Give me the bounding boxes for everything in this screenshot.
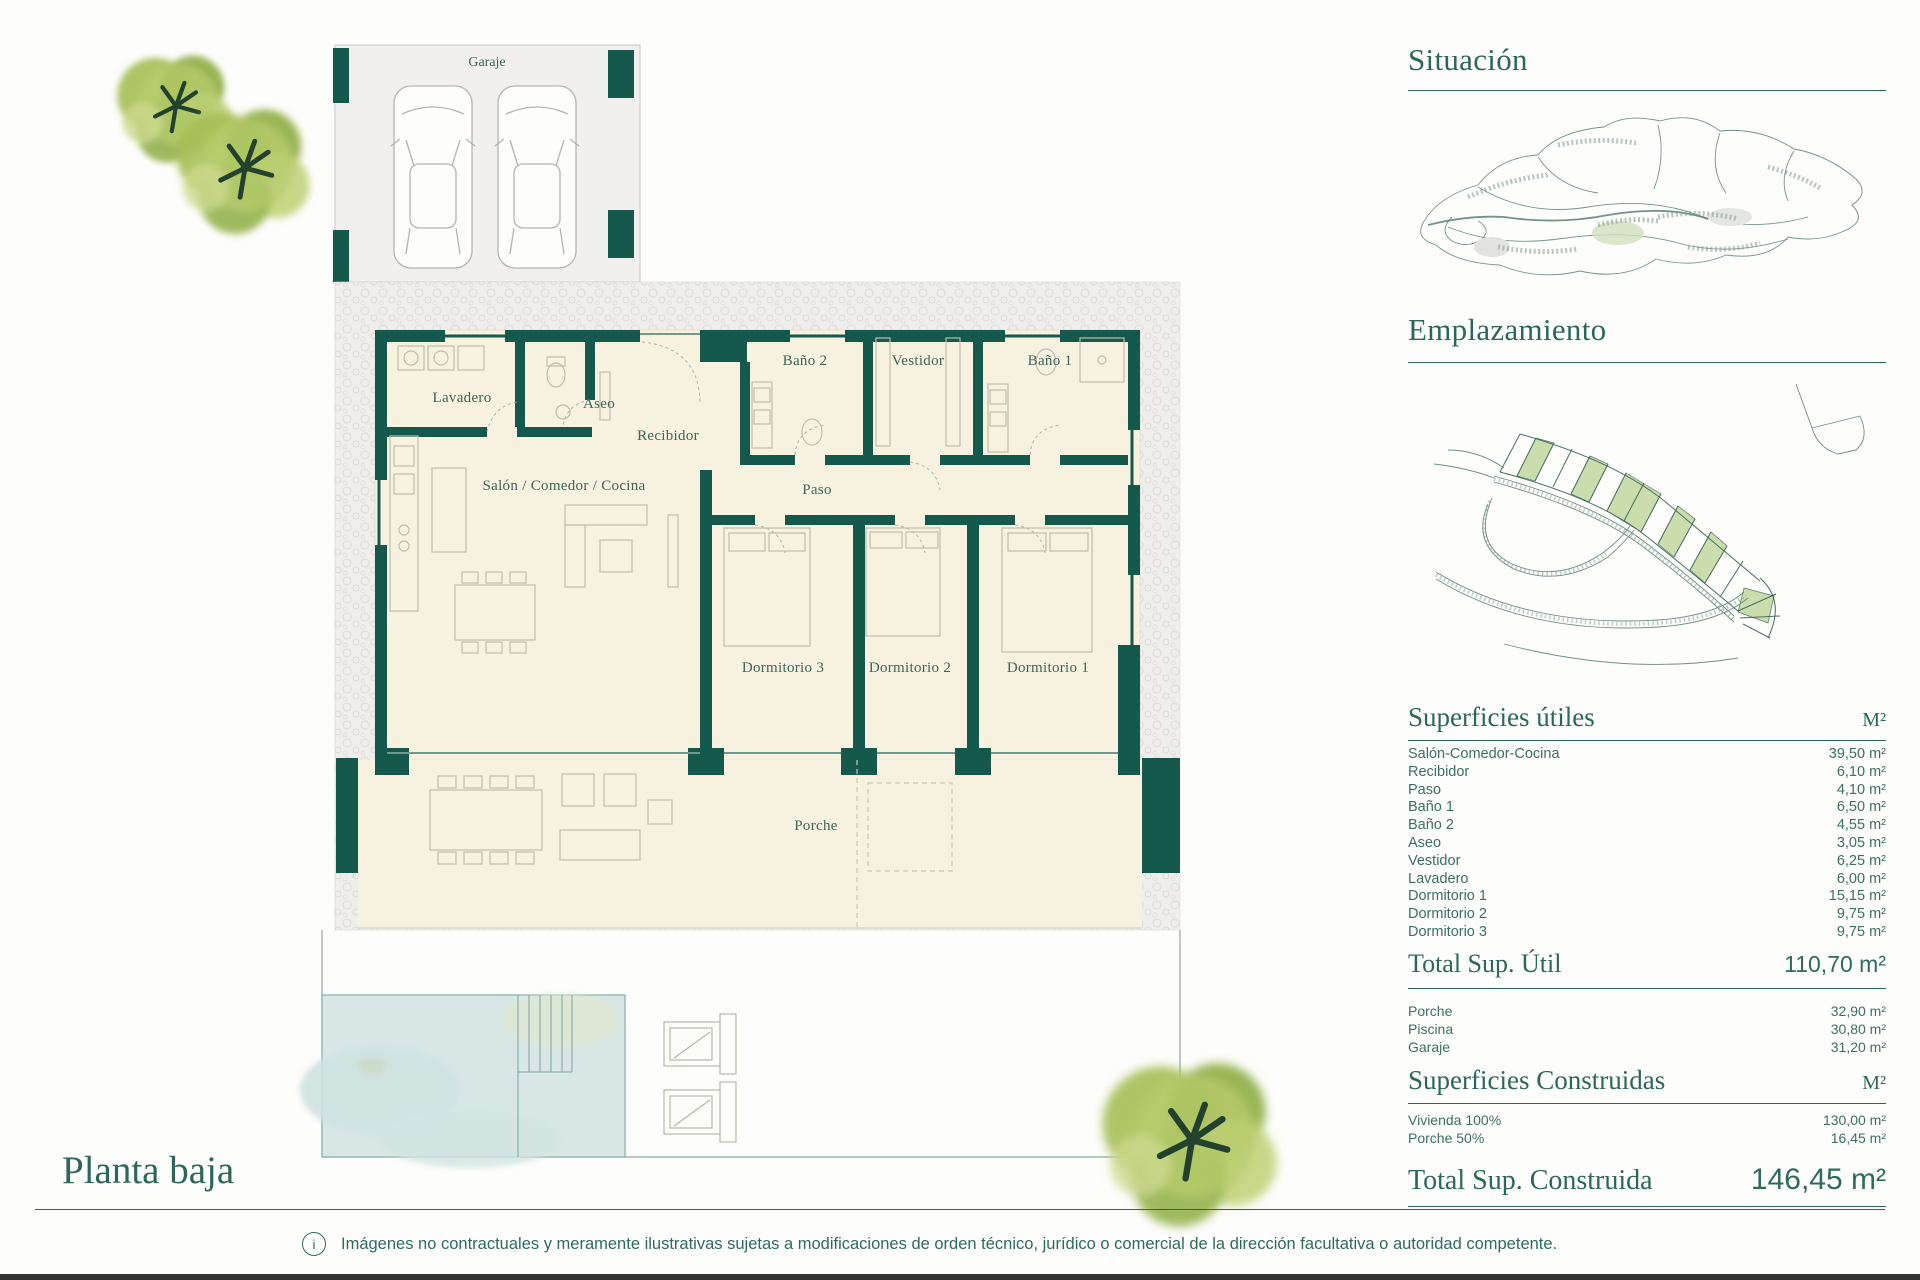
unit-header: M² bbox=[1862, 709, 1886, 732]
car-outline bbox=[495, 86, 579, 268]
room-label-garaje: Garaje bbox=[468, 55, 505, 70]
table-row: Vivienda 100%130,00 m² bbox=[1408, 1111, 1886, 1129]
table-row: Salón-Comedor-Cocina39,50 m² bbox=[1408, 746, 1886, 764]
tree bbox=[1102, 1063, 1276, 1226]
emplazamiento-title: Emplazamiento bbox=[1408, 312, 1886, 348]
table-row: Baño 24,55 m² bbox=[1408, 817, 1886, 835]
room-label-lavadero: Lavadero bbox=[432, 390, 491, 406]
room-label-dormitorio3: Dormitorio 3 bbox=[742, 660, 824, 676]
table-row: Baño 16,50 m² bbox=[1408, 799, 1886, 817]
tree bbox=[177, 109, 310, 233]
total-sup-util: Total Sup. Útil 110,70 m² bbox=[1408, 942, 1886, 989]
table-row: Piscina30,80 m² bbox=[1408, 1020, 1886, 1038]
room-label-porche: Porche bbox=[794, 818, 837, 834]
situacion-rule bbox=[1408, 90, 1886, 91]
superficies-construidas-rows: Vivienda 100%130,00 m² Porche 50%16,45 m… bbox=[1408, 1111, 1886, 1147]
porch-floor bbox=[358, 760, 1142, 928]
room-label-paso: Paso bbox=[802, 482, 832, 498]
pool-area bbox=[300, 930, 1180, 1168]
room-label-bano2: Baño 2 bbox=[783, 353, 828, 369]
page-bottom-edge bbox=[0, 1274, 1920, 1280]
table-row: Dormitorio 115,15 m² bbox=[1408, 888, 1886, 906]
emplazamiento-rule bbox=[1408, 362, 1886, 363]
surface-tables: Superficies útiles M² Salón-Comedor-Coci… bbox=[1408, 702, 1886, 1207]
floorplan-drawing: Garaje bbox=[0, 0, 1405, 1280]
room-label-vestidor: Vestidor bbox=[892, 353, 944, 369]
footer-rule bbox=[35, 1209, 1885, 1210]
page-title: Planta baja bbox=[62, 1148, 234, 1193]
table-row: Porche 50%16,45 m² bbox=[1408, 1129, 1886, 1147]
situacion-title: Situación bbox=[1408, 42, 1886, 78]
superficies-utiles-rows: Salón-Comedor-Cocina39,50 m² Recibidor6,… bbox=[1408, 746, 1886, 942]
brochure-page: Garaje bbox=[0, 0, 1920, 1280]
footer-disclaimer: Imágenes no contractuales y meramente il… bbox=[341, 1235, 1557, 1254]
table-row: Dormitorio 29,75 m² bbox=[1408, 906, 1886, 924]
table-row: Aseo3,05 m² bbox=[1408, 835, 1886, 853]
sun-lounger bbox=[664, 1082, 736, 1142]
table-row: Vestidor6,25 m² bbox=[1408, 853, 1886, 871]
room-label-dormitorio1: Dormitorio 1 bbox=[1007, 660, 1089, 676]
table-row: Porche32,90 m² bbox=[1408, 1002, 1886, 1020]
situacion-map bbox=[1408, 97, 1886, 309]
car-outline bbox=[391, 86, 475, 268]
superficies-utiles-header: Superficies útiles M² bbox=[1408, 702, 1886, 741]
footer: i Imágenes no contractuales y meramente … bbox=[302, 1232, 1557, 1256]
room-label-aseo: Aseo bbox=[583, 396, 615, 412]
table-row: Recibidor6,10 m² bbox=[1408, 764, 1886, 782]
room-label-dormitorio2: Dormitorio 2 bbox=[869, 660, 951, 676]
sidebar: Situación Emplaza bbox=[1408, 0, 1886, 1280]
table-row: Paso4,10 m² bbox=[1408, 782, 1886, 800]
room-label-recibidor: Recibidor bbox=[637, 428, 699, 444]
table-row: Dormitorio 39,75 m² bbox=[1408, 924, 1886, 942]
emplazamiento-map bbox=[1408, 376, 1886, 698]
sun-lounger bbox=[664, 1014, 736, 1074]
garage: Garaje bbox=[333, 45, 640, 282]
total-sup-construida: Total Sup. Construida 146,45 m² bbox=[1408, 1156, 1886, 1207]
unit-header: M² bbox=[1862, 1072, 1886, 1095]
superficies-construidas-header: Superficies Construidas M² bbox=[1408, 1065, 1886, 1104]
superficies-construidas-title: Superficies Construidas bbox=[1408, 1065, 1665, 1096]
table-row: Garaje31,20 m² bbox=[1408, 1038, 1886, 1056]
room-label-salon: Salón / Comedor / Cocina bbox=[482, 478, 645, 494]
room-label-bano1: Baño 1 bbox=[1028, 353, 1073, 369]
superficies-utiles-title: Superficies útiles bbox=[1408, 702, 1595, 733]
exterior-rows: Porche32,90 m² Piscina30,80 m² Garaje31,… bbox=[1408, 1002, 1886, 1056]
info-icon: i bbox=[302, 1232, 326, 1256]
table-row: Lavadero6,00 m² bbox=[1408, 871, 1886, 889]
